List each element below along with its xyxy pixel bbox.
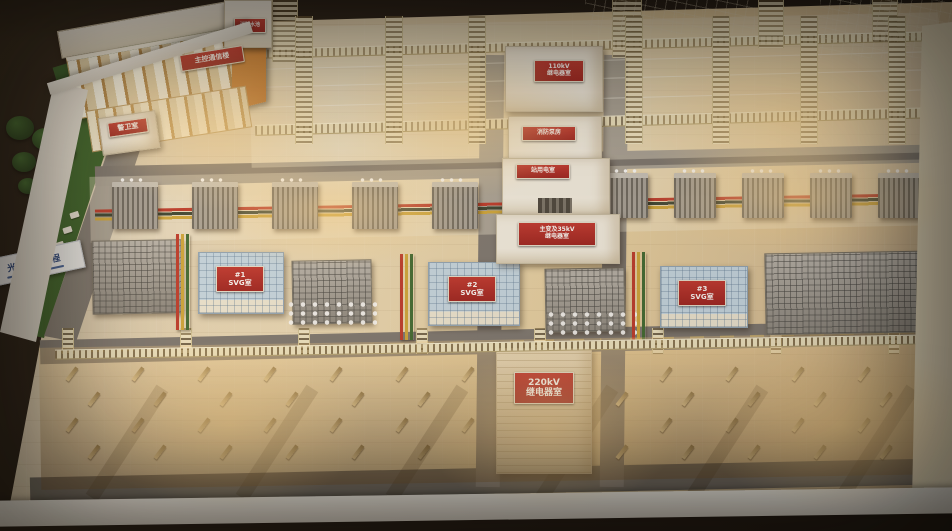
table-frame-left: [0, 0, 952, 531]
substation-model-photo: 主控通信楼 警卫室 消防水池 110kV 继电器室 消防泵房 站用电室 主变及3…: [0, 0, 952, 531]
